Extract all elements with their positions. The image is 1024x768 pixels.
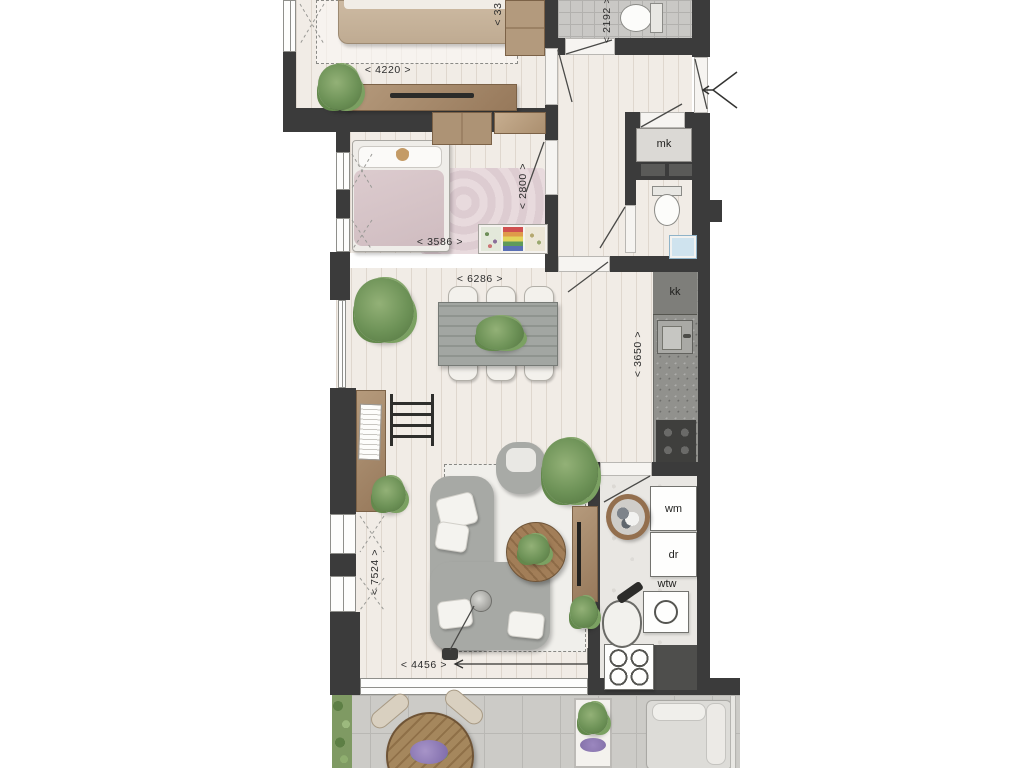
terrace-lavender: [580, 738, 606, 752]
toilet-bowl: [620, 4, 652, 32]
toilet-cistern: [650, 3, 663, 33]
plant-table-centerpiece: [476, 316, 524, 350]
wall: [330, 252, 350, 300]
laundry-shaft: [652, 645, 697, 690]
shower-mat: [670, 236, 696, 258]
kids-shelf: [494, 112, 546, 134]
dim-kids-width: < 3586 >: [390, 236, 490, 248]
dim-master-width: < 4220 >: [328, 64, 448, 76]
kitchen-faucet: [683, 334, 691, 338]
wall: [283, 52, 296, 110]
terrace-hedge: [332, 695, 352, 768]
wall: [652, 462, 697, 476]
door-master-bedroom: [545, 48, 558, 105]
wall: [697, 260, 710, 680]
wall: [336, 132, 350, 152]
plant-living-large: [542, 438, 598, 504]
wall: [330, 388, 356, 514]
window-kids-2: [336, 218, 350, 252]
outdoor-sofa-back: [652, 703, 706, 721]
armchair-cushion: [506, 448, 536, 472]
dryer: dr: [650, 532, 697, 577]
wall: [545, 253, 558, 272]
wall: [615, 38, 692, 55]
wall: [545, 0, 558, 48]
dim-dining-width: < 6286 >: [425, 273, 535, 285]
dim-living-width: < 4456 >: [382, 659, 466, 671]
heat-pump-unit: [604, 644, 654, 690]
plant-bookshelf: [372, 476, 406, 512]
window-dining: [338, 300, 346, 388]
ladder-rack: [390, 394, 434, 446]
sofa-pillow: [434, 521, 470, 554]
dim-toilet-width: < 2192 >: [601, 0, 613, 50]
window-terrace-sliding: [360, 678, 588, 695]
wall: [710, 200, 722, 222]
window-living-1: [330, 514, 356, 554]
dim-living-depth: < 7524 >: [369, 541, 381, 603]
floor-plan: mk kk: [0, 0, 1024, 768]
tv-on-dresser: [390, 93, 474, 98]
terrace-rail: [730, 695, 736, 768]
plant-terrace: [578, 702, 608, 734]
wall: [336, 190, 350, 218]
plant-dining: [354, 278, 414, 342]
sofa-pillow: [507, 610, 546, 640]
door-hall-living: [558, 256, 610, 272]
wall: [283, 108, 350, 132]
duct-vent: [641, 164, 665, 176]
plant-coffee-table: [518, 534, 550, 564]
dim-master-depth: < 33: [492, 0, 504, 44]
tv-screen: [577, 522, 581, 586]
teddy-bear: [396, 148, 409, 161]
washing-machine: wm: [650, 486, 697, 531]
kk-label: kk: [653, 286, 697, 298]
mk-label: mk: [636, 138, 692, 150]
bath-toilet-bowl: [654, 194, 680, 226]
door-bathroom: [625, 205, 636, 253]
wtw-port: [654, 600, 678, 624]
duct-vent: [669, 164, 693, 176]
window-kids-1: [336, 152, 350, 190]
door-laundry: [600, 462, 652, 476]
tv-sideboard: [572, 506, 598, 602]
dim-kids-depth: < 2800 >: [517, 155, 529, 217]
wall: [330, 612, 360, 695]
wall: [558, 38, 565, 55]
door-entrance: [694, 57, 708, 113]
wall: [692, 0, 710, 57]
entrance-arrow: [703, 72, 737, 108]
plant-under-tv: [570, 596, 598, 628]
cooktop: [656, 420, 696, 462]
terrace-flowers: [410, 740, 448, 764]
master-wardrobe: [505, 0, 545, 56]
dim-kitchen-depth: < 3650 >: [632, 323, 644, 385]
outdoor-sofa-side: [706, 703, 726, 765]
laundry-basket: [606, 494, 650, 540]
vacuum-cleaner: [602, 600, 642, 648]
door-mk: [640, 112, 685, 128]
floor-lamp-head: [470, 590, 492, 612]
window-master: [283, 0, 296, 52]
toy-bin-rainbow: [503, 227, 523, 251]
sofa-pillow: [436, 598, 473, 630]
wall: [625, 112, 640, 128]
kids-blanket: [354, 170, 444, 246]
heat-recovery-unit: [643, 591, 689, 633]
kids-wardrobe: [432, 112, 492, 145]
toy-bin-floral: [525, 227, 545, 251]
wtw-label: wtw: [643, 578, 691, 590]
window-living-2: [330, 576, 356, 612]
wall: [330, 554, 356, 576]
kitchen-sink-basin: [662, 326, 682, 350]
door-kids-bedroom: [545, 140, 558, 195]
books-stack: [358, 404, 382, 461]
